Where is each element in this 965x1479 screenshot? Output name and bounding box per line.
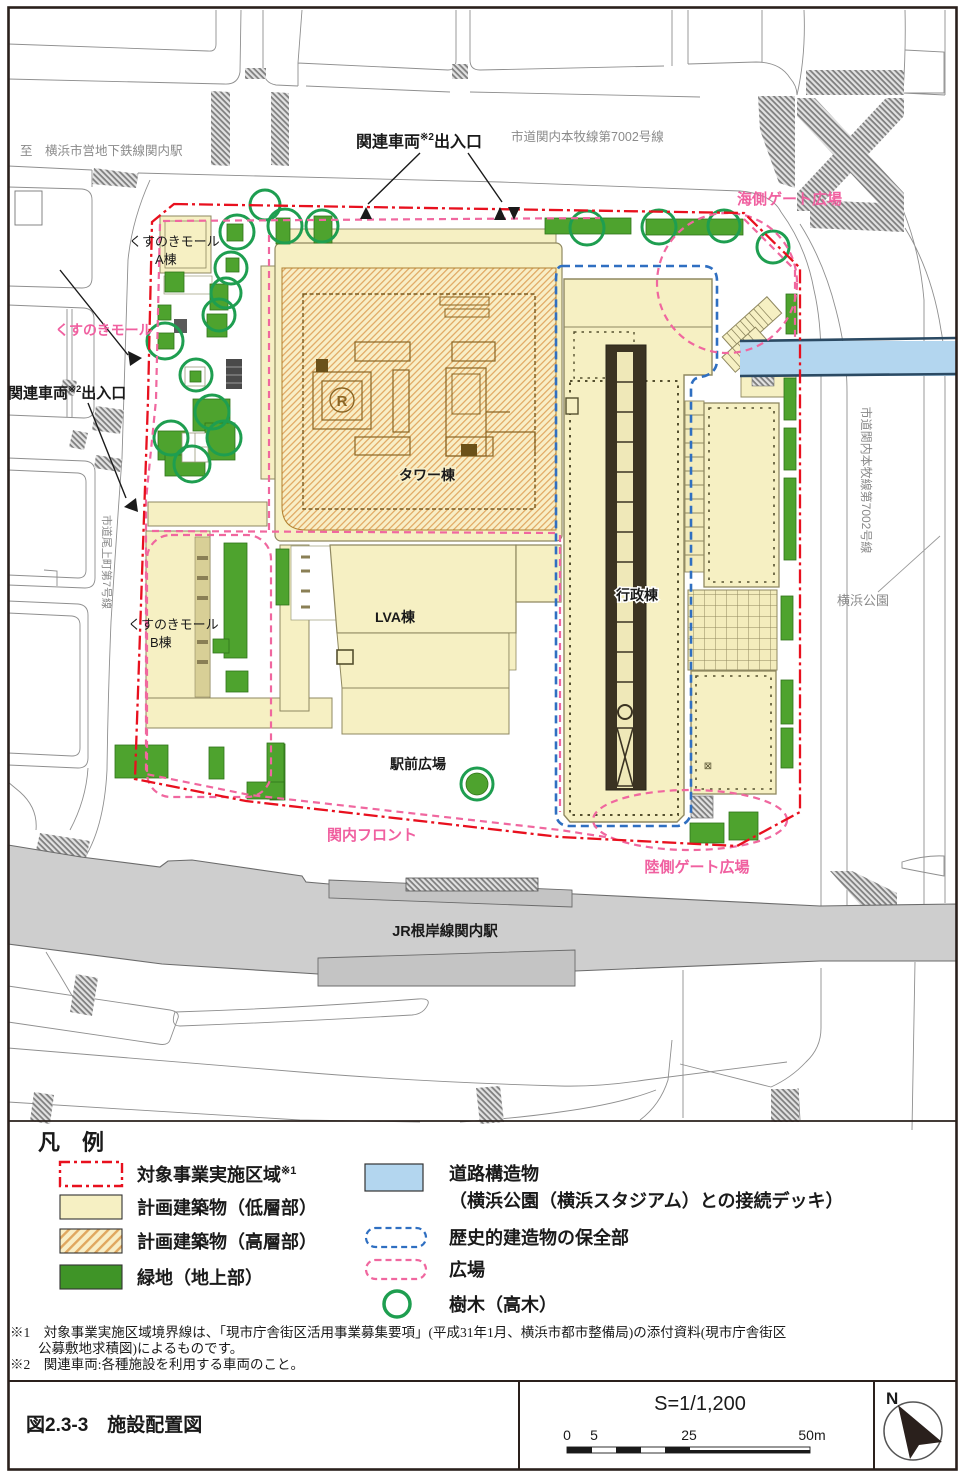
svg-text:陸側ゲート広場: 陸側ゲート広場 — [644, 858, 749, 876]
svg-text:図2.3-3 施設配置図: 図2.3-3 施設配置図 — [26, 1413, 202, 1436]
svg-text:タワー棟: タワー棟 — [399, 467, 456, 483]
svg-text:道路構造物: 道路構造物 — [449, 1163, 539, 1184]
svg-text:凡 例: 凡 例 — [38, 1130, 104, 1155]
svg-text:25: 25 — [681, 1427, 697, 1443]
svg-text:計画建築物（低層部）: 計画建築物（低層部） — [137, 1197, 317, 1218]
svg-text:至 横浜市営地下鉄線関内駅: 至 横浜市営地下鉄線関内駅 — [20, 143, 183, 158]
svg-text:緑地（地上部）: 緑地（地上部） — [137, 1267, 263, 1288]
svg-text:関連車両※2出入口: 関連車両※2出入口 — [8, 384, 126, 402]
svg-text:市道尾上町第7号線: 市道尾上町第7号線 — [100, 515, 114, 609]
svg-text:くすのきモール: くすのきモール — [55, 322, 153, 338]
svg-text:海側ゲート広場: 海側ゲート広場 — [737, 190, 842, 208]
svg-text:歴史的建造物の保全部: 歴史的建造物の保全部 — [449, 1227, 629, 1248]
svg-text:計画建築物（高層部）: 計画建築物（高層部） — [137, 1231, 317, 1252]
svg-text:N: N — [886, 1389, 898, 1408]
svg-text:くすのきモール: くすのきモール — [128, 617, 219, 632]
svg-text:※2 関連車両:各種施設を利用する車両のこと。: ※2 関連車両:各種施設を利用する車両のこと。 — [10, 1357, 304, 1372]
svg-text:LVA棟: LVA棟 — [375, 609, 416, 625]
svg-text:駅前広場: 駅前広場 — [390, 756, 446, 772]
svg-text:※1 対象事業実施区域境界線は、「現市庁舎街区活用事業募集要: ※1 対象事業実施区域境界線は、「現市庁舎街区活用事業募集要項」(平成31年1月… — [10, 1324, 786, 1340]
svg-text:A棟: A棟 — [155, 252, 177, 267]
svg-text:市道関内本牧線第7002号線: 市道関内本牧線第7002号線 — [511, 129, 664, 144]
svg-text:くすのきモール: くすのきモール — [129, 234, 220, 249]
svg-text:樹木（高木）: 樹木（高木） — [449, 1294, 557, 1315]
svg-text:対象事業実施区域※1: 対象事業実施区域※1 — [136, 1164, 296, 1185]
svg-text:（横浜公園（横浜スタジアム）との接続デッキ）: （横浜公園（横浜スタジアム）との接続デッキ） — [449, 1190, 844, 1211]
svg-text:JR根岸線関内駅: JR根岸線関内駅 — [392, 922, 498, 940]
svg-text:行政棟: 行政棟 — [615, 587, 659, 603]
svg-text:B棟: B棟 — [150, 635, 172, 650]
svg-text:0: 0 — [563, 1427, 571, 1443]
svg-text:横浜公園: 横浜公園 — [837, 593, 889, 608]
svg-text:市道関内本牧線第7002号線: 市道関内本牧線第7002号線 — [859, 407, 874, 554]
svg-text:公募敷地求積図)によるものです。: 公募敷地求積図)によるものです。 — [38, 1341, 243, 1356]
svg-text:⊠: ⊠ — [704, 761, 712, 772]
svg-text:50m: 50m — [798, 1427, 825, 1443]
svg-text:R: R — [337, 393, 348, 410]
svg-text:5: 5 — [590, 1427, 598, 1443]
svg-text:関内フロント: 関内フロント — [327, 826, 417, 844]
svg-text:広場: 広場 — [449, 1259, 485, 1280]
svg-text:S=1/1,200: S=1/1,200 — [654, 1393, 746, 1415]
svg-text:関連車両※2出入口: 関連車両※2出入口 — [356, 132, 482, 151]
